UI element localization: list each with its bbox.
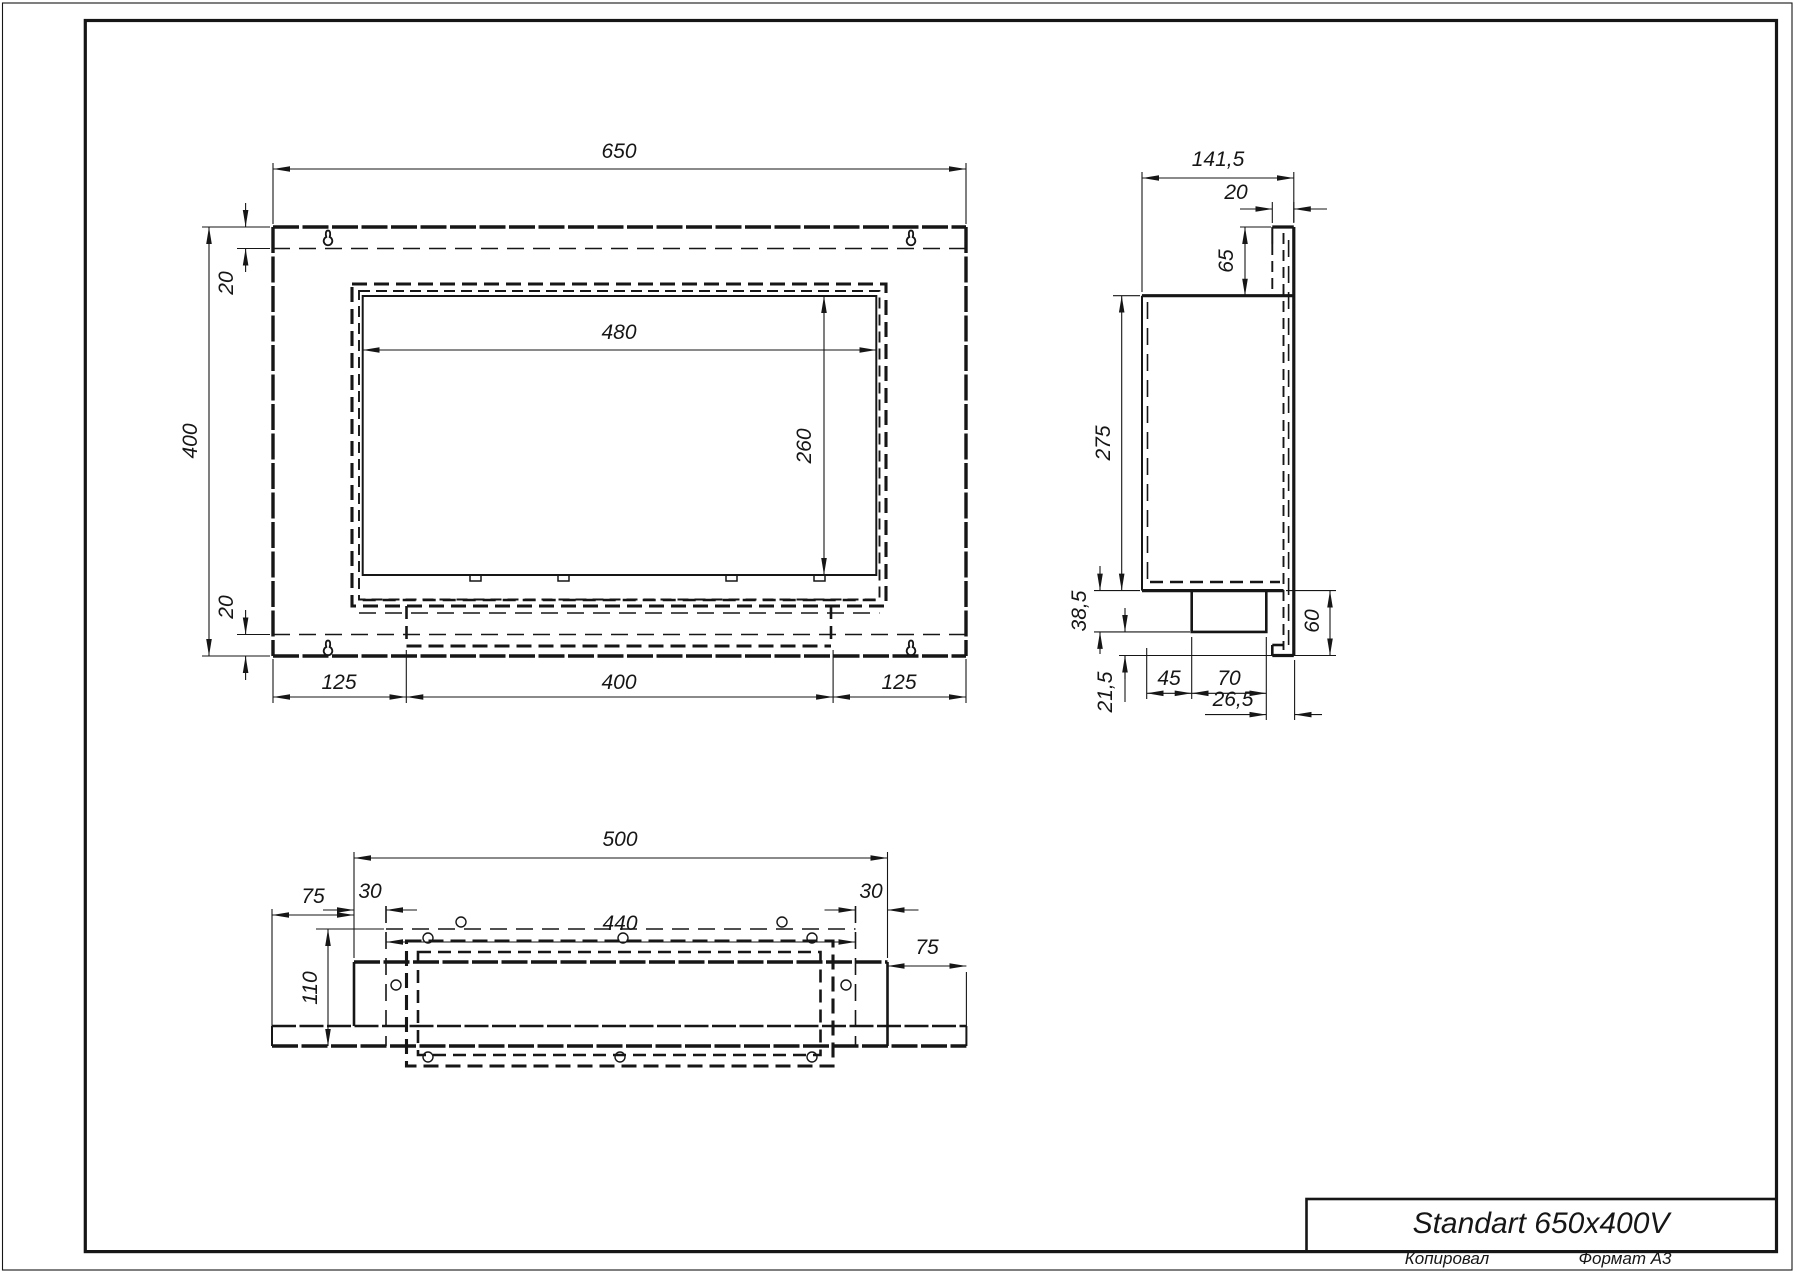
dim-side-foot-width: 70 [1217,667,1241,690]
drawing-title: Standart 650x400V [1413,1207,1673,1240]
drawing-frame [3,3,1793,1270]
dim-side-foot-drop: 21,5 [1094,671,1117,713]
dim-bottom-center: 400 [601,671,636,694]
bottom-view: 500 30 30 440 75 75 110 [272,828,966,1066]
dim-bv-width: 500 [602,828,637,851]
dim-front-offset-bottom: 20 [215,595,238,620]
footer-copied-by: Копировал [1405,1249,1490,1268]
dim-opening-width: 480 [601,321,636,344]
dim-front-offset-top: 20 [215,271,238,296]
dim-bottom-left: 125 [321,671,356,694]
dim-side-foot-to-face: 26,5 [1212,688,1254,711]
dim-side-body-height: 275 [1092,425,1115,461]
technical-drawing: 650 400 20 20 480 260 125 400 125 [0,0,1800,1273]
outer-border [3,3,1793,1270]
keyhole-icon [907,231,916,246]
dim-bv-margin-right: 30 [859,880,883,903]
dim-side-flange-height: 60 [1301,609,1324,633]
dim-bv-margin-left: 30 [358,880,382,903]
keyhole-icon [907,641,916,656]
side-view: 141,5 20 65 275 38,5 21,5 45 70 [1068,148,1336,720]
footer-format: Формат А3 [1578,1249,1672,1268]
title-block: Standart 650x400V Копировал Формат А3 [1307,1199,1777,1268]
dim-bottom-right: 125 [881,671,916,694]
dim-opening-height: 260 [793,428,816,464]
dim-bv-plate-left: 75 [301,885,325,908]
dim-front-height: 400 [179,423,202,458]
inner-border [85,21,1776,1252]
keyhole-icon [324,641,333,656]
front-view: 650 400 20 20 480 260 125 400 125 [179,140,966,703]
dim-side-depth: 141,5 [1192,148,1245,171]
dim-side-base-drop: 38,5 [1068,590,1091,631]
dim-side-tab-height: 65 [1215,249,1238,273]
dim-side-tab-depth: 20 [1223,181,1248,204]
dim-bv-opening-width: 440 [602,912,637,935]
dim-front-width: 650 [601,140,636,163]
dim-bv-depth: 110 [299,971,322,1005]
screw-holes [391,917,851,1062]
dim-side-foot-offset: 45 [1157,667,1181,690]
dim-bv-plate-right: 75 [915,936,939,959]
keyhole-icon [324,231,333,246]
